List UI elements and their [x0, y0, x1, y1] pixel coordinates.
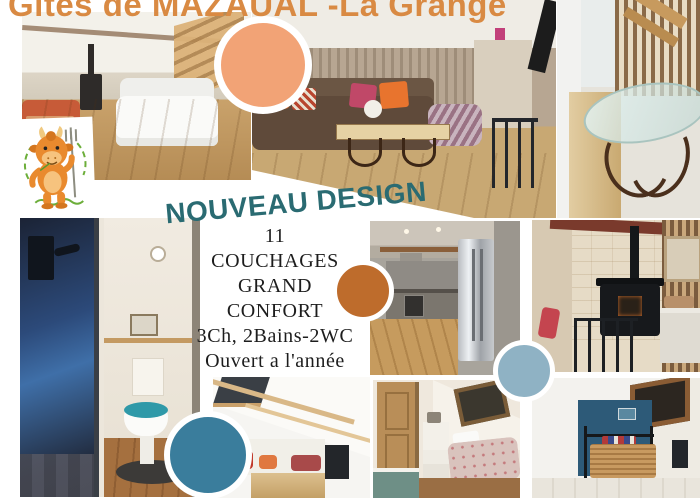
oven [404, 295, 424, 317]
attic-bedroom-floral-photo [373, 380, 520, 498]
wall-tv [528, 0, 556, 73]
fridge [458, 239, 494, 361]
red-sofa [291, 455, 321, 471]
flush-panel [132, 358, 164, 396]
flyer-canvas: Gîtes de MAZAUAL -La Grange NOUVEAU DESI… [0, 0, 700, 500]
orange-armchair [259, 455, 277, 469]
pink-wall-light [495, 28, 505, 40]
info-line-rooms: 3Ch, 2Bains-2WC [176, 324, 374, 349]
safety-fence [574, 318, 638, 372]
cow-mascot-icon [14, 117, 95, 214]
light-blue-circle [493, 340, 555, 402]
stove-window [618, 296, 642, 316]
shower-panel [28, 236, 54, 280]
wall-clock [150, 246, 166, 262]
upper-cabinets [386, 261, 458, 289]
wood-stove-room-photo [532, 220, 700, 372]
dining-glass-table-photo [557, 0, 700, 218]
wood-island [251, 473, 325, 498]
wall-picture [618, 408, 636, 420]
fridge-handle [472, 249, 475, 341]
tv-cabinet [325, 445, 349, 479]
page-title: Gîtes de MAZAUAL -La Grange [8, 0, 507, 24]
dresser-lamp [427, 412, 441, 423]
kitchen-floor [370, 319, 458, 375]
console-table [660, 308, 700, 363]
salmon-circle [214, 16, 312, 114]
wicker-bench [590, 444, 656, 478]
wall-picture [664, 236, 700, 282]
white-dresser [423, 422, 449, 478]
shower-floor [20, 454, 94, 497]
info-line-couchages-count: 11 [176, 224, 374, 249]
console-basket [664, 296, 694, 308]
white-ball-cushion [364, 100, 382, 118]
door-panel [385, 392, 409, 430]
stove-pipe [630, 226, 639, 286]
teal-circle [164, 411, 252, 499]
stove-pipe [88, 44, 94, 78]
picture-frame [130, 314, 158, 336]
dark-speaker [672, 440, 688, 468]
attic-bedroom-blue-photo [532, 378, 700, 498]
foreground-bed-corner [373, 468, 419, 498]
fridge-handle-2 [480, 249, 483, 341]
teal-toilet-seat [124, 402, 168, 418]
burnt-orange-circle [332, 260, 394, 322]
gites-mascot-logo [14, 117, 95, 214]
info-line-open-year: Ouvert a l'année [176, 349, 374, 374]
light-floor [532, 478, 700, 498]
spotlight-2 [436, 227, 441, 232]
orange-cushion-2 [379, 81, 409, 109]
bedroom-floor [409, 478, 520, 498]
stone-wall [474, 40, 532, 128]
spotlight [404, 229, 409, 234]
